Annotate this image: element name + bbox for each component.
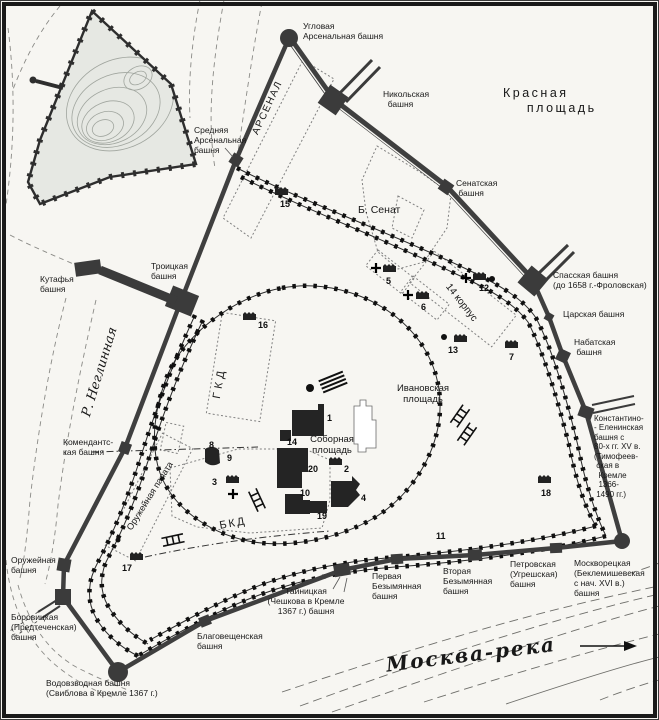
building-2-icon: [329, 457, 342, 465]
srednyaya-arsenalnaya-tower-label: Средняя Арсенальная башня: [194, 125, 246, 155]
ivanovskaya-ploshchad-label: Ивановская площадь: [397, 383, 449, 405]
marker-11: 11: [436, 531, 446, 541]
marker-3: 3: [212, 477, 217, 487]
marker-13: 13: [448, 345, 458, 355]
kremlin-plan-map: 1234567891011121314151617181920 Угловая …: [0, 0, 659, 720]
oruzheinaya-tower-label: Оружейная башня: [11, 555, 56, 575]
konstantino-eleninskaya-tower-icon: [577, 404, 594, 420]
building-1: [292, 404, 324, 436]
moskvoretskaya-tower-label: Москворецкая (Беклемишевская с нач. XVI …: [574, 558, 645, 598]
oruzheinaya-tower-icon: [56, 557, 71, 572]
marker-14: 14: [287, 437, 297, 447]
marker-6: 6: [421, 302, 426, 312]
nikolskaya-tower-label: Никольская башня: [383, 89, 429, 109]
building-18-icon: [538, 475, 551, 483]
building-17-icon: [130, 552, 143, 560]
pervaya-bezymyannaya-tower-label: Первая Безымянная башня: [372, 571, 421, 601]
kutafya-tower-label: Кутафья башня: [40, 274, 74, 294]
fort-gate-spur: [30, 77, 64, 89]
vodovzvodnaya-tower-label: Водовзводная башня (Свиблова в Кремле 13…: [46, 678, 158, 698]
bolshoy-senat-label: Б. Сенат: [358, 204, 400, 216]
marker-7: 7: [509, 352, 514, 362]
building-12-icon: [473, 272, 486, 280]
marker-12: 12: [479, 283, 489, 293]
blagoveshchenskaya-tower-label: Благовещенская башня: [197, 631, 263, 651]
petrovskaya-tower-icon: [550, 543, 562, 553]
vtoraya-bezymyannaya-tower-icon: [468, 549, 483, 561]
marker-5: 5: [386, 276, 391, 286]
marker-20: 20: [308, 464, 318, 474]
marker-1: 1: [327, 413, 332, 423]
komendantskaya-tower-label: Комендантс- кая башня: [63, 437, 113, 457]
petrovskaya-tower-label: Петровская (Угрешская) башня: [510, 559, 558, 589]
borovitskaya-tower-label: Боровицкая (Предтеченская) башня: [11, 612, 77, 642]
tsarskaya-tower-label: Царская башня: [563, 309, 624, 319]
senatskaya-tower-label: Сенатская башня: [456, 178, 497, 198]
marker-16: 16: [258, 320, 268, 330]
building-16-icon: [243, 312, 256, 320]
sobornaya-ploshchad-label: Соборная площадь: [310, 434, 354, 456]
marker-17: 17: [122, 563, 132, 573]
marker-19: 19: [317, 511, 327, 521]
konstantino-eleninskaya-tower-label: Константино- - Еленинская башня с 80-х г…: [594, 414, 644, 499]
building-6-icon: [416, 291, 429, 299]
marker-2: 2: [344, 464, 349, 474]
river-flow-arrow-icon: [580, 641, 637, 651]
building-7-icon: [505, 340, 518, 348]
building-13-icon: [454, 334, 467, 342]
numbered-markers: 1234567891011121314151617181920: [122, 187, 551, 573]
tainitskaya-tower-label: Тайницкая (Чешкова в Кремле 1367 г.) баш…: [268, 586, 345, 616]
old-fortress-hill: [28, 11, 196, 204]
marker-4: 4: [361, 493, 366, 503]
marker-18: 18: [541, 488, 551, 498]
marker-10: 10: [300, 488, 310, 498]
nabatnaya-tower-icon: [555, 348, 571, 364]
marker-8: 8: [209, 440, 214, 450]
ivan-bell-tower-dot: [306, 384, 314, 392]
building-20: [277, 448, 308, 488]
troitskaya-tower-label: Троицкая башня: [151, 261, 188, 281]
uglovaya-arsenalnaya-tower-label: Угловая Арсенальная башня: [303, 21, 383, 41]
church-outline: [354, 400, 376, 452]
building-5-icon: [383, 264, 396, 272]
vtoraya-bezymyannaya-tower-label: Вторая Безымянная башня: [443, 566, 492, 596]
building-4: [331, 476, 360, 507]
kutafya-tower-icon: [74, 259, 102, 276]
moskvoretskaya-corner-tower-icon: [614, 533, 630, 549]
borovitskaya-gate-tower-icon: [55, 589, 71, 605]
church-cross-icons: [228, 263, 471, 499]
marker-15: 15: [280, 199, 290, 209]
building-15-icon: [275, 187, 288, 195]
building-3-icon: [226, 475, 239, 483]
marker-9: 9: [227, 453, 232, 463]
krasnaya-ploshchad-label: Красная площадь: [503, 86, 597, 116]
uglovaya-arsenalnaya-corner-tower-icon: [280, 29, 298, 47]
pervaya-bezymyannaya-tower-icon: [391, 554, 404, 565]
spasskaya-tower-label: Спасская башня (до 1658 г.-Фроловская): [553, 270, 647, 290]
nabatnaya-tower-label: Набатская башня: [574, 337, 615, 357]
hatch-lines-icon: [319, 372, 348, 393]
